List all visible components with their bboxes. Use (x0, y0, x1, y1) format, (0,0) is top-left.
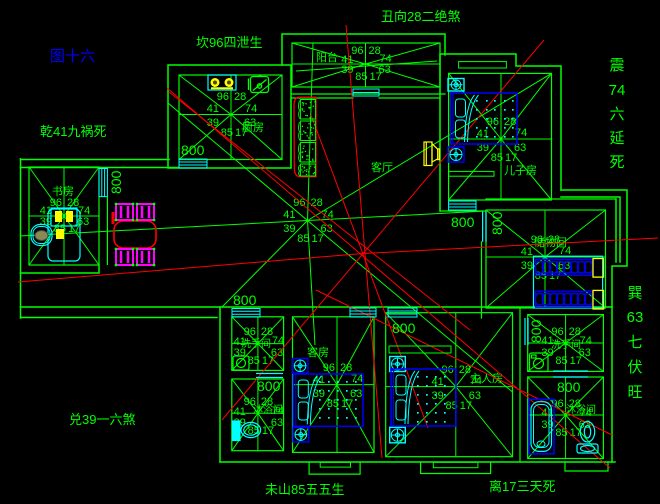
svg-text:85: 85 (297, 233, 309, 245)
svg-text:39: 39 (283, 223, 295, 235)
svg-text:厨房: 厨房 (242, 121, 264, 134)
svg-text:74: 74 (245, 103, 257, 115)
svg-text:七: 七 (627, 334, 642, 351)
svg-text:74: 74 (580, 335, 592, 347)
svg-text:74: 74 (609, 82, 626, 99)
svg-text:800: 800 (181, 142, 205, 158)
svg-text:41: 41 (521, 246, 533, 258)
svg-text:未山85五五生: 未山85五五生 (265, 482, 344, 497)
svg-text:17: 17 (312, 233, 324, 245)
svg-text:800: 800 (557, 379, 581, 395)
svg-text:乾41九祸死: 乾41九祸死 (40, 124, 106, 139)
svg-text:74: 74 (351, 373, 363, 385)
svg-text:沐浴间: 沐浴间 (566, 403, 596, 416)
svg-text:85: 85 (355, 71, 367, 83)
svg-text:800: 800 (451, 214, 475, 230)
svg-text:800: 800 (108, 170, 124, 194)
svg-text:800: 800 (257, 378, 281, 394)
svg-text:41: 41 (283, 209, 295, 221)
svg-text:丑向28二绝煞: 丑向28二绝煞 (381, 9, 460, 24)
svg-text:儿子房: 儿子房 (504, 164, 537, 177)
svg-text:96: 96 (442, 364, 454, 376)
svg-text:客厅: 客厅 (371, 160, 393, 174)
svg-text:17: 17 (570, 355, 582, 367)
svg-text:39: 39 (341, 64, 353, 76)
svg-text:旺: 旺 (627, 384, 642, 401)
svg-text:离17三天死: 离17三天死 (489, 479, 555, 494)
svg-text:39: 39 (521, 260, 533, 272)
svg-text:储物间: 储物间 (534, 235, 567, 249)
svg-text:阳台: 阳台 (316, 50, 338, 64)
svg-text:17: 17 (262, 425, 274, 437)
svg-text:63: 63 (627, 309, 644, 326)
svg-text:74: 74 (322, 209, 334, 221)
svg-text:图十六: 图十六 (50, 48, 95, 65)
svg-text:兑39一六煞: 兑39一六煞 (69, 412, 135, 427)
svg-text:96: 96 (323, 362, 335, 374)
svg-text:41: 41 (207, 103, 219, 115)
svg-text:74: 74 (272, 335, 284, 347)
svg-text:800: 800 (528, 319, 544, 343)
svg-text:41: 41 (477, 128, 489, 140)
svg-text:85: 85 (491, 152, 503, 164)
svg-text:17: 17 (460, 400, 472, 412)
svg-text:震: 震 (609, 57, 624, 74)
svg-text:800: 800 (392, 320, 416, 336)
svg-text:沐浴间: 沐浴间 (253, 403, 283, 416)
svg-text:96: 96 (217, 91, 229, 103)
svg-text:800: 800 (233, 292, 257, 308)
svg-text:85: 85 (555, 427, 567, 439)
svg-text:39: 39 (432, 390, 444, 402)
svg-text:28: 28 (311, 197, 323, 209)
svg-text:六: 六 (609, 106, 624, 123)
svg-text:28: 28 (234, 91, 246, 103)
svg-text:死: 死 (609, 154, 624, 171)
svg-text:85: 85 (555, 355, 567, 367)
svg-text:洗手间: 洗手间 (551, 338, 581, 351)
svg-text:延: 延 (609, 130, 624, 147)
svg-text:96: 96 (487, 116, 499, 128)
svg-text:巽: 巽 (627, 285, 642, 302)
svg-text:洗手间: 洗手间 (241, 337, 271, 350)
svg-text:17: 17 (505, 152, 517, 164)
svg-text:客房: 客房 (307, 345, 329, 359)
svg-text:41: 41 (432, 376, 444, 388)
svg-text:伏: 伏 (627, 359, 642, 376)
svg-text:800: 800 (489, 211, 505, 235)
svg-text:坎96四泄生: 坎96四泄生 (196, 35, 262, 50)
svg-text:17: 17 (370, 71, 382, 83)
svg-text:书房: 书房 (52, 185, 74, 198)
